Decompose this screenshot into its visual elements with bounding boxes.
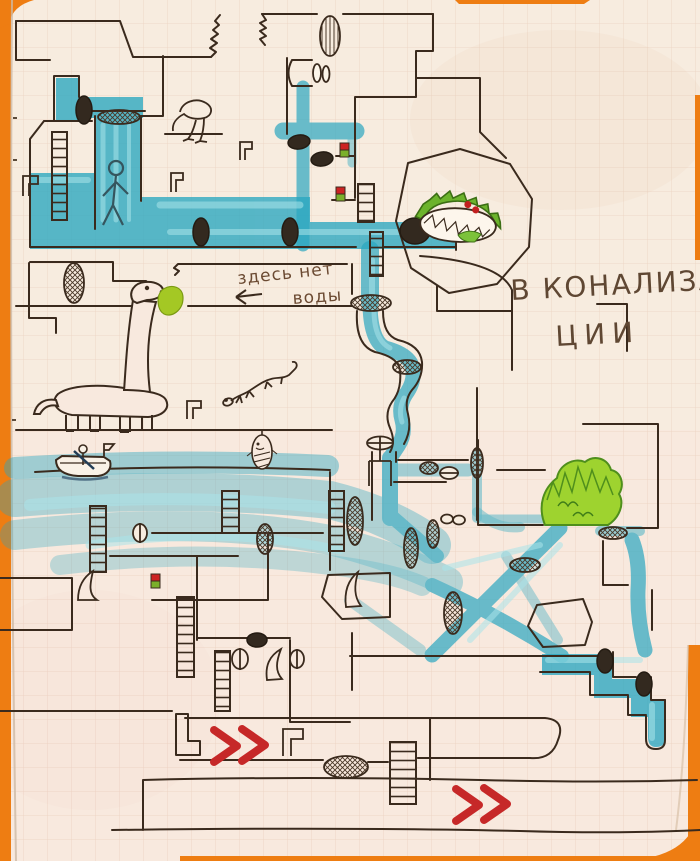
ladder-icon <box>358 184 374 222</box>
ladder-icon <box>329 491 344 551</box>
grate-icon <box>351 295 391 311</box>
grate-icon <box>444 592 462 634</box>
ladder-icon <box>177 597 194 677</box>
grate-icon <box>324 756 368 778</box>
tap-icon <box>323 66 330 82</box>
grate-icon <box>471 448 483 478</box>
grate-icon <box>404 528 418 568</box>
ladder-icon <box>370 232 383 276</box>
grate-icon <box>257 524 273 554</box>
no-water-label-line2: воды <box>292 286 343 309</box>
dark-grate-icon <box>636 672 652 696</box>
grate-icon <box>98 110 140 124</box>
ladder-icon <box>90 506 106 572</box>
tall-grate-icon <box>320 16 340 56</box>
location-label-line2: ЦИИ <box>555 316 641 353</box>
grate-icon <box>64 263 84 303</box>
ladder-icon <box>390 742 416 804</box>
grate-icon <box>599 527 627 539</box>
grate-icon <box>420 462 438 474</box>
notebook-page: здесь нет воды В КОНАЛИЗА- ЦИИ <box>0 0 700 861</box>
grate-icon <box>510 558 540 572</box>
sewer-map-drawing: здесь нет воды В КОНАЛИЗА- ЦИИ <box>0 0 700 861</box>
grate-icon <box>427 520 439 548</box>
ladder-icon <box>215 651 230 711</box>
item-icon <box>336 187 345 201</box>
grate-icon <box>347 497 363 545</box>
item-icon <box>151 574 160 588</box>
grate-icon <box>393 360 421 374</box>
dark-grate-icon <box>76 96 92 124</box>
dark-grate-icon <box>193 218 209 246</box>
water-tank <box>56 78 78 120</box>
tap-icon <box>313 64 321 82</box>
item-icon <box>340 143 349 157</box>
ladder-icon <box>52 132 67 220</box>
dark-grate-icon <box>247 633 267 647</box>
dark-grate-icon <box>282 218 298 246</box>
ladder-icon <box>222 491 239 533</box>
dark-grate-icon <box>597 649 613 673</box>
